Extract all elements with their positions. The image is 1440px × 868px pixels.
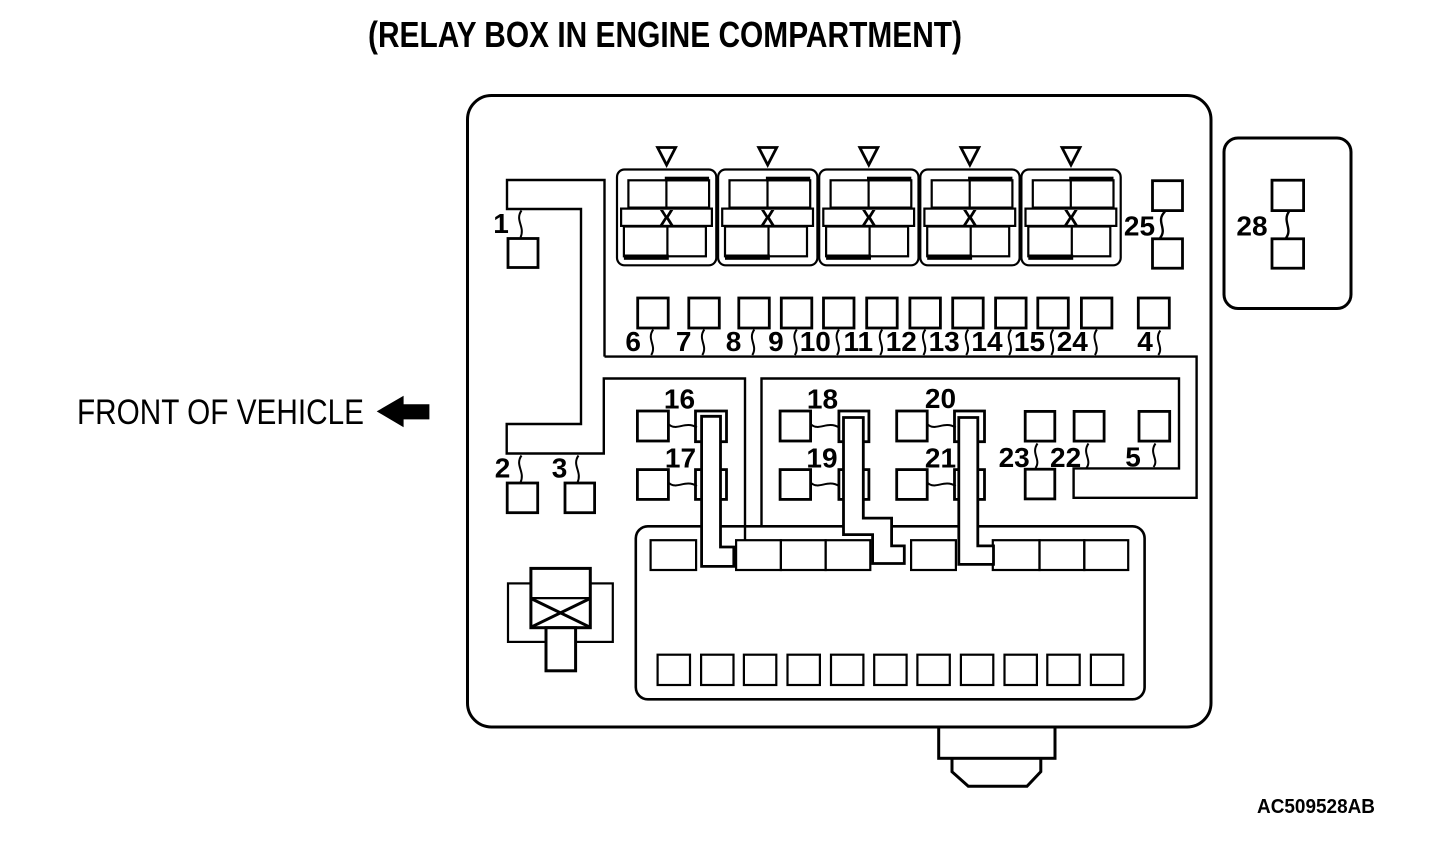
svg-text:8: 8 (726, 326, 742, 357)
svg-text:14: 14 (971, 326, 1003, 357)
svg-text:7: 7 (676, 326, 692, 357)
svg-text:21: 21 (925, 443, 956, 474)
svg-text:25: 25 (1124, 211, 1155, 242)
svg-text:AC509528AB: AC509528AB (1257, 796, 1375, 818)
svg-text:28: 28 (1236, 211, 1267, 242)
svg-text:9: 9 (768, 326, 784, 357)
svg-text:10: 10 (800, 326, 831, 357)
svg-text:20: 20 (925, 383, 956, 414)
svg-text:2: 2 (495, 453, 511, 484)
svg-text:13: 13 (929, 326, 960, 357)
svg-text:3: 3 (552, 453, 568, 484)
svg-text:12: 12 (886, 326, 917, 357)
svg-text:15: 15 (1014, 326, 1045, 357)
svg-text:5: 5 (1125, 442, 1141, 473)
svg-text:4: 4 (1137, 326, 1153, 357)
svg-text:22: 22 (1050, 442, 1081, 473)
svg-text:(RELAY BOX IN ENGINE COMPARTME: (RELAY BOX IN ENGINE COMPARTMENT) (368, 14, 962, 55)
svg-text:11: 11 (843, 326, 873, 357)
svg-text:6: 6 (625, 326, 641, 357)
svg-text:24: 24 (1057, 326, 1089, 357)
svg-text:FRONT OF VEHICLE: FRONT OF VEHICLE (77, 393, 364, 432)
svg-text:1: 1 (493, 208, 509, 239)
